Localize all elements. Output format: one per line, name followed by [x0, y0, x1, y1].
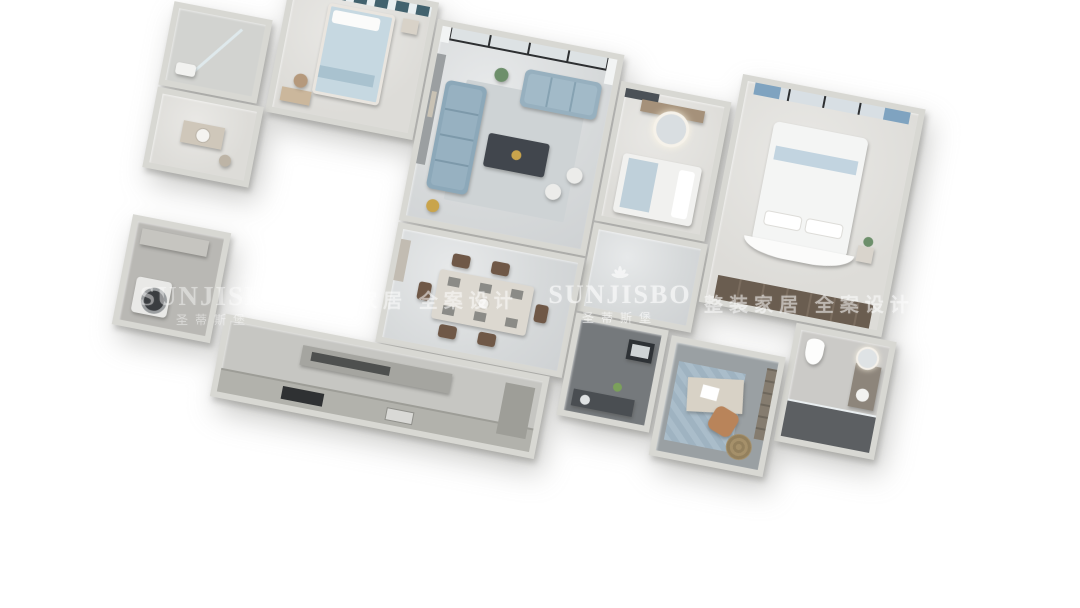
- chair: [451, 253, 471, 269]
- artwork: [427, 91, 437, 117]
- chair: [477, 331, 497, 347]
- bed-throw: [773, 146, 858, 176]
- kitchen-sink: [384, 407, 414, 425]
- washing-machine: [130, 276, 172, 318]
- place-setting: [505, 317, 518, 328]
- room-laundry: [112, 214, 232, 343]
- room-master-bedroom: [699, 74, 926, 337]
- nightstand: [855, 245, 874, 264]
- bed-runner: [619, 158, 658, 213]
- bath-vanity: [848, 363, 882, 411]
- blue-curtain: [883, 108, 911, 125]
- place-setting: [473, 311, 486, 322]
- place-setting: [510, 289, 523, 300]
- toilet: [803, 337, 826, 366]
- bed-throw: [318, 65, 375, 87]
- sink: [855, 388, 870, 403]
- island: [299, 345, 452, 394]
- paper: [700, 384, 720, 401]
- place-setting: [442, 305, 455, 316]
- bed: [311, 3, 395, 106]
- room-bathroom-small: [158, 1, 272, 104]
- master-bed: [751, 121, 869, 259]
- plant: [493, 67, 509, 83]
- room-master-bathroom: [774, 323, 897, 460]
- bed: [612, 153, 702, 227]
- pillow: [804, 218, 844, 240]
- pillow: [763, 210, 803, 232]
- chair: [437, 324, 457, 340]
- room-living: [399, 19, 625, 256]
- counter: [571, 388, 635, 417]
- gold-side-table: [425, 198, 440, 213]
- mirror-cabinet: [626, 339, 655, 364]
- bookshelf: [754, 368, 778, 441]
- washer-door: [139, 285, 169, 315]
- chair: [490, 261, 510, 277]
- bath-fixture: [175, 62, 197, 78]
- cooktop: [281, 386, 325, 407]
- counter-run: [217, 368, 534, 452]
- stool: [218, 154, 232, 168]
- balcony-sliding-doors: [448, 27, 610, 71]
- wardrobe: [714, 275, 874, 329]
- chair: [416, 281, 432, 301]
- sideboard: [393, 239, 411, 282]
- nightstand: [401, 18, 419, 35]
- shower-glass: [191, 28, 243, 74]
- island-top: [310, 352, 390, 376]
- basin: [194, 127, 212, 145]
- centerpiece: [476, 297, 490, 311]
- sink: [579, 394, 591, 406]
- room-guest-bathroom: [557, 313, 669, 433]
- room-dressing-bedroom: [594, 81, 731, 242]
- floorplan-render: [93, 0, 943, 526]
- mirror: [630, 344, 650, 359]
- pillows: [670, 170, 695, 220]
- laundry-cabinet: [140, 228, 210, 257]
- table-decor: [511, 149, 523, 161]
- desk: [280, 86, 312, 105]
- pillows: [331, 10, 381, 32]
- plant: [612, 382, 623, 393]
- chair: [533, 304, 549, 324]
- place-setting: [479, 283, 492, 294]
- chair: [292, 72, 308, 88]
- room-study: [649, 335, 786, 477]
- blue-curtain: [753, 83, 781, 100]
- place-setting: [447, 277, 460, 288]
- room-secondary-bedroom: [265, 0, 439, 140]
- cloak-vanity: [180, 120, 225, 150]
